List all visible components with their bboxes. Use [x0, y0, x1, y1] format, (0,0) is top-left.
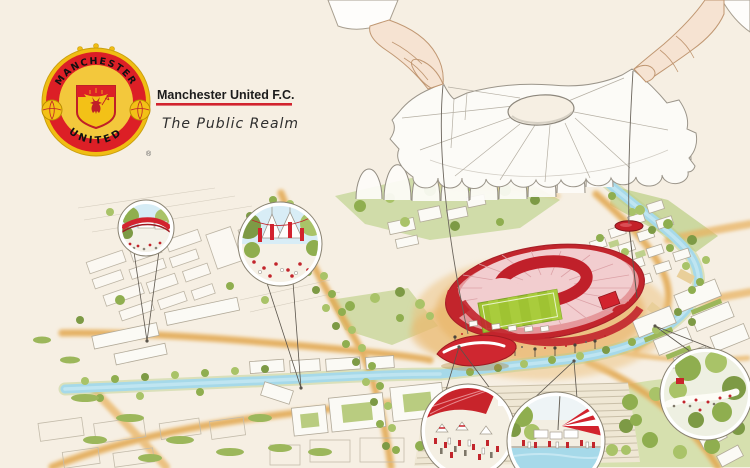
football-left — [42, 100, 62, 120]
football-right — [130, 100, 150, 120]
title-underline — [156, 103, 292, 106]
subtitle-text: The Public Realm — [162, 116, 299, 132]
crest-shield — [77, 86, 115, 128]
public-realm-poster: MANCHESTER UNITED ® Manchester United F.… — [0, 0, 750, 468]
masterplan-illustration: MANCHESTER UNITED ® Manchester United F.… — [0, 0, 750, 468]
club-name-title: Manchester United F.C. — [157, 88, 295, 102]
lifted-canopy-membrane — [390, 69, 697, 189]
registered-trademark: ® — [146, 150, 152, 158]
